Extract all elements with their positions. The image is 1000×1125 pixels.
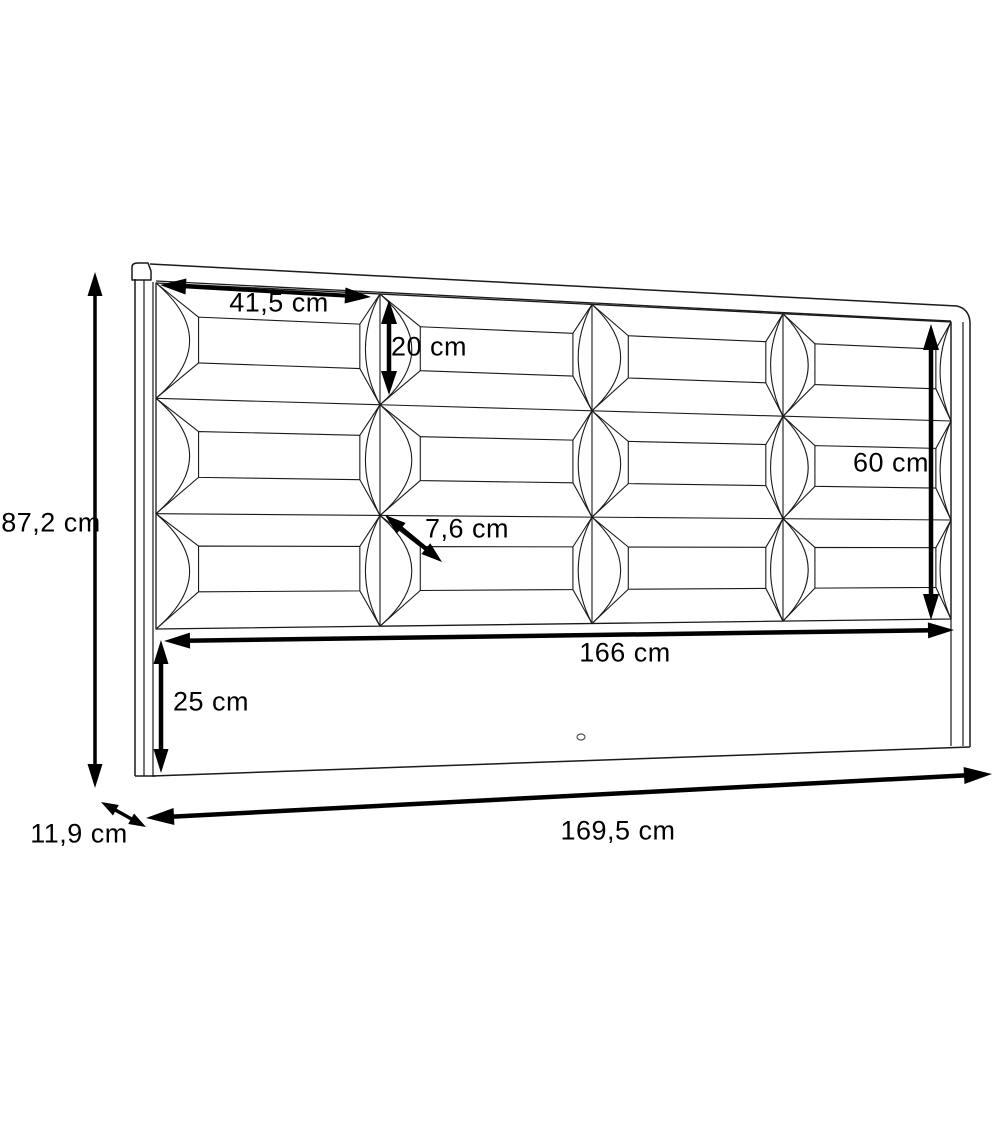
dimension-label-padded-height: 60 cm bbox=[853, 448, 929, 479]
dimension-label-overall-height: 87,2 cm bbox=[1, 508, 101, 539]
dimension-label-bottom-rail-height: 25 cm bbox=[173, 687, 249, 718]
drawing-canvas: 87,2 cm 41,5 cm 20 cm 60 cm 7,6 cm 166 c… bbox=[0, 0, 1000, 1125]
dimension-label-panel-height: 20 cm bbox=[391, 332, 467, 363]
dimension-label-panel-width: 41,5 cm bbox=[229, 288, 329, 319]
headboard-diagram bbox=[0, 0, 1000, 1125]
dimension-label-panel-depth: 7,6 cm bbox=[425, 514, 509, 545]
dimension-label-inner-width: 166 cm bbox=[579, 638, 671, 669]
dimension-label-overall-width: 169,5 cm bbox=[560, 816, 675, 847]
dimension-label-side-depth: 11,9 cm bbox=[30, 819, 128, 850]
